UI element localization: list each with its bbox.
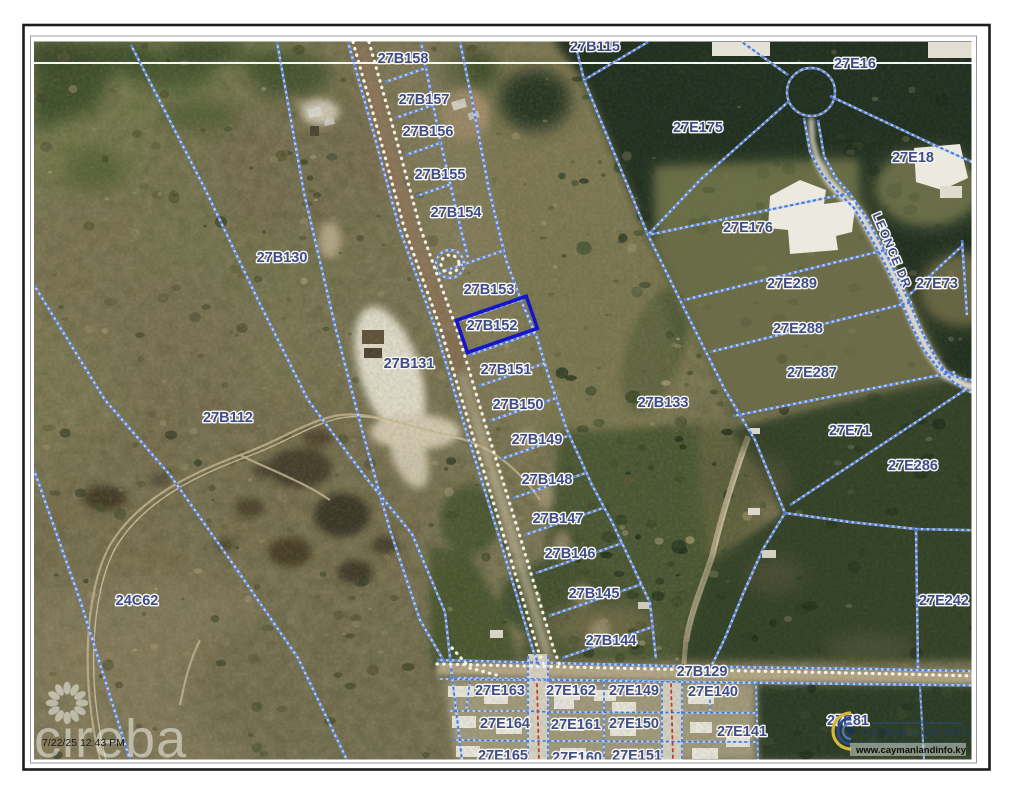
svg-text:27E73: 27E73 bbox=[916, 276, 958, 292]
svg-text:27B112: 27B112 bbox=[203, 410, 253, 426]
svg-text:27B152: 27B152 bbox=[467, 318, 518, 334]
svg-text:27B131: 27B131 bbox=[384, 356, 435, 372]
svg-text:27E150: 27E150 bbox=[609, 716, 659, 732]
svg-text:CAYMAN LAND INFO: CAYMAN LAND INFO bbox=[862, 728, 970, 739]
svg-text:27B146: 27B146 bbox=[545, 546, 596, 562]
svg-text:27E163: 27E163 bbox=[475, 683, 525, 699]
svg-text:27E16: 27E16 bbox=[834, 56, 876, 72]
svg-text:27E176: 27E176 bbox=[723, 220, 773, 236]
svg-text:27B158: 27B158 bbox=[378, 51, 429, 67]
svg-text:27B129: 27B129 bbox=[677, 664, 728, 680]
svg-text:7/22/25 12:43 PM: 7/22/25 12:43 PM bbox=[42, 737, 125, 749]
svg-text:27B149: 27B149 bbox=[512, 432, 563, 448]
svg-text:27E175: 27E175 bbox=[673, 120, 723, 136]
svg-text:27B144: 27B144 bbox=[586, 633, 637, 649]
svg-text:27E287: 27E287 bbox=[787, 365, 837, 381]
svg-text:27B148: 27B148 bbox=[522, 472, 573, 488]
svg-text:27E141: 27E141 bbox=[717, 724, 767, 740]
svg-text:27E140: 27E140 bbox=[688, 684, 738, 700]
svg-text:27E164: 27E164 bbox=[480, 716, 530, 732]
svg-text:27B150: 27B150 bbox=[493, 397, 544, 413]
svg-text:27B156: 27B156 bbox=[403, 124, 454, 140]
svg-text:27B151: 27B151 bbox=[481, 362, 532, 378]
svg-text:27B155: 27B155 bbox=[415, 167, 466, 183]
svg-text:27E242: 27E242 bbox=[919, 593, 969, 609]
svg-text:27E289: 27E289 bbox=[767, 276, 817, 292]
svg-text:27E162: 27E162 bbox=[546, 683, 596, 699]
svg-text:27E161: 27E161 bbox=[551, 717, 601, 733]
svg-text:24C62: 24C62 bbox=[116, 593, 159, 609]
svg-text:27E149: 27E149 bbox=[609, 683, 659, 699]
svg-text:27B145: 27B145 bbox=[569, 586, 620, 602]
svg-text:27B157: 27B157 bbox=[399, 92, 450, 108]
svg-text:27E286: 27E286 bbox=[888, 458, 938, 474]
svg-text:27B130: 27B130 bbox=[257, 250, 308, 266]
svg-text:27B153: 27B153 bbox=[464, 282, 515, 298]
svg-text:27E18: 27E18 bbox=[892, 150, 934, 166]
svg-text:27E288: 27E288 bbox=[773, 321, 823, 337]
svg-text:www.caymanlandinfo.ky: www.caymanlandinfo.ky bbox=[855, 745, 967, 756]
svg-text:27B147: 27B147 bbox=[533, 511, 584, 527]
svg-text:27B133: 27B133 bbox=[638, 395, 689, 411]
svg-text:27E71: 27E71 bbox=[829, 423, 871, 439]
svg-text:27B154: 27B154 bbox=[431, 205, 482, 221]
